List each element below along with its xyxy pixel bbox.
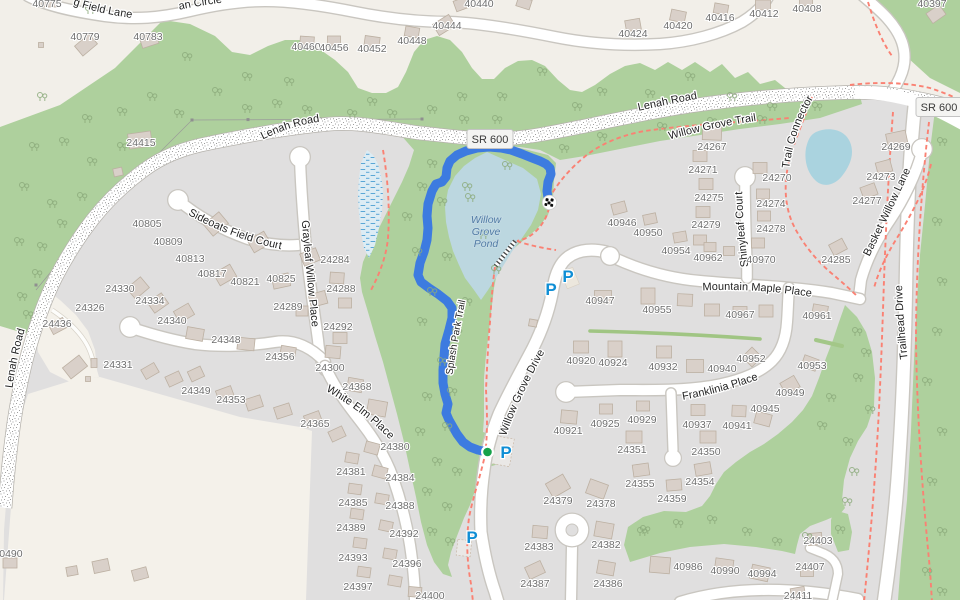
svg-text:40970: 40970 (746, 254, 775, 266)
svg-text:24331: 24331 (103, 359, 132, 371)
svg-text:40945: 40945 (750, 403, 779, 415)
svg-text:24270: 24270 (762, 172, 791, 184)
svg-text:24378: 24378 (586, 498, 615, 510)
svg-text:40962: 40962 (693, 252, 722, 264)
svg-text:Willow: Willow (471, 214, 503, 226)
svg-text:24326: 24326 (75, 302, 104, 314)
svg-text:40448: 40448 (397, 35, 426, 47)
svg-text:40452: 40452 (357, 43, 386, 55)
svg-text:40775: 40775 (32, 0, 61, 10)
svg-text:40994: 40994 (747, 568, 776, 580)
svg-text:24388: 24388 (385, 500, 414, 512)
svg-text:24334: 24334 (135, 295, 164, 307)
svg-text:40954: 40954 (661, 245, 690, 257)
svg-text:40424: 40424 (618, 28, 647, 40)
svg-text:24284: 24284 (320, 254, 349, 266)
svg-text:40412: 40412 (749, 8, 778, 20)
svg-text:24277: 24277 (852, 195, 881, 207)
svg-text:24274: 24274 (756, 198, 785, 210)
svg-text:24353: 24353 (216, 394, 245, 406)
svg-text:24381: 24381 (336, 466, 365, 478)
svg-text:24340: 24340 (157, 315, 186, 327)
svg-text:P: P (562, 267, 573, 286)
svg-text:40947: 40947 (585, 295, 614, 307)
svg-text:24382: 24382 (591, 539, 620, 551)
svg-text:24383: 24383 (524, 541, 553, 553)
svg-text:24397: 24397 (343, 581, 372, 593)
svg-text:P: P (545, 280, 556, 299)
svg-text:40986: 40986 (673, 561, 702, 573)
svg-text:24407: 24407 (795, 561, 824, 573)
svg-text:24400: 24400 (415, 590, 444, 600)
svg-text:24386: 24386 (593, 578, 622, 590)
svg-text:24368: 24368 (342, 381, 371, 393)
svg-text:24275: 24275 (694, 192, 723, 204)
svg-text:40817: 40817 (197, 268, 226, 280)
svg-text:40924: 40924 (598, 357, 627, 369)
svg-text:SR 600: SR 600 (472, 134, 509, 146)
svg-text:Grove: Grove (472, 226, 501, 238)
svg-text:40460: 40460 (291, 41, 320, 53)
svg-text:40783: 40783 (133, 31, 162, 43)
svg-text:40961: 40961 (802, 310, 831, 322)
svg-text:40953: 40953 (797, 360, 826, 372)
svg-text:40821: 40821 (230, 276, 259, 288)
svg-text:P: P (500, 443, 511, 462)
svg-text:40940: 40940 (707, 363, 736, 375)
svg-text:24278: 24278 (756, 223, 785, 235)
svg-text:24359: 24359 (657, 493, 686, 505)
svg-text:40444: 40444 (432, 20, 461, 32)
svg-text:24271: 24271 (688, 164, 717, 176)
svg-text:40955: 40955 (642, 304, 671, 316)
svg-text:24380: 24380 (380, 441, 409, 453)
svg-text:40825: 40825 (266, 273, 295, 285)
svg-text:24356: 24356 (265, 351, 294, 363)
svg-text:24273: 24273 (866, 171, 895, 183)
svg-text:40990: 40990 (710, 565, 739, 577)
svg-text:24384: 24384 (385, 472, 414, 484)
svg-text:40420: 40420 (663, 20, 692, 32)
svg-text:40937: 40937 (682, 419, 711, 431)
svg-text:40949: 40949 (775, 387, 804, 399)
svg-text:40809: 40809 (153, 236, 182, 248)
svg-text:24349: 24349 (181, 385, 210, 397)
svg-text:40416: 40416 (705, 12, 734, 24)
svg-text:24285: 24285 (821, 254, 850, 266)
svg-text:40805: 40805 (132, 218, 161, 230)
svg-text:24269: 24269 (881, 141, 910, 153)
svg-text:24267: 24267 (697, 141, 726, 153)
svg-text:40929: 40929 (627, 414, 656, 426)
svg-text:40952: 40952 (736, 353, 765, 365)
svg-text:40967: 40967 (725, 309, 754, 321)
svg-text:24389: 24389 (336, 522, 365, 534)
svg-text:40456: 40456 (319, 42, 348, 54)
svg-text:40920: 40920 (566, 355, 595, 367)
svg-text:40946: 40946 (607, 217, 636, 229)
svg-text:24385: 24385 (338, 497, 367, 509)
svg-text:40941: 40941 (722, 420, 751, 432)
svg-text:24354: 24354 (685, 476, 714, 488)
svg-text:40932: 40932 (648, 361, 677, 373)
svg-text:24365: 24365 (300, 418, 329, 430)
svg-text:24379: 24379 (543, 495, 572, 507)
svg-text:40408: 40408 (792, 3, 821, 15)
svg-text:40490: 40490 (0, 548, 23, 560)
svg-text:24396: 24396 (392, 558, 421, 570)
svg-text:40813: 40813 (175, 253, 204, 265)
svg-text:40921: 40921 (553, 425, 582, 437)
svg-text:24411: 24411 (784, 590, 813, 600)
svg-text:P: P (466, 528, 477, 547)
svg-text:24289: 24289 (273, 301, 302, 313)
svg-text:40440: 40440 (464, 0, 493, 10)
svg-text:40397: 40397 (917, 0, 946, 10)
svg-text:24415: 24415 (126, 137, 155, 149)
svg-text:24355: 24355 (625, 478, 654, 490)
svg-text:24393: 24393 (338, 552, 367, 564)
svg-text:24436: 24436 (42, 318, 71, 330)
svg-text:24330: 24330 (105, 283, 134, 295)
svg-text:24350: 24350 (691, 446, 720, 458)
svg-text:24288: 24288 (326, 283, 355, 295)
svg-text:40779: 40779 (70, 31, 99, 43)
svg-text:24403: 24403 (803, 535, 832, 547)
svg-text:24392: 24392 (389, 528, 418, 540)
svg-text:Pond: Pond (474, 238, 500, 250)
svg-text:40950: 40950 (633, 227, 662, 239)
svg-text:SR 600: SR 600 (921, 102, 958, 114)
svg-text:24387: 24387 (520, 578, 549, 590)
svg-text:24300: 24300 (315, 362, 344, 374)
svg-text:40925: 40925 (590, 418, 619, 430)
svg-text:24279: 24279 (691, 219, 720, 231)
svg-text:24292: 24292 (323, 321, 352, 333)
svg-text:24348: 24348 (211, 334, 240, 346)
svg-text:24351: 24351 (617, 444, 646, 456)
